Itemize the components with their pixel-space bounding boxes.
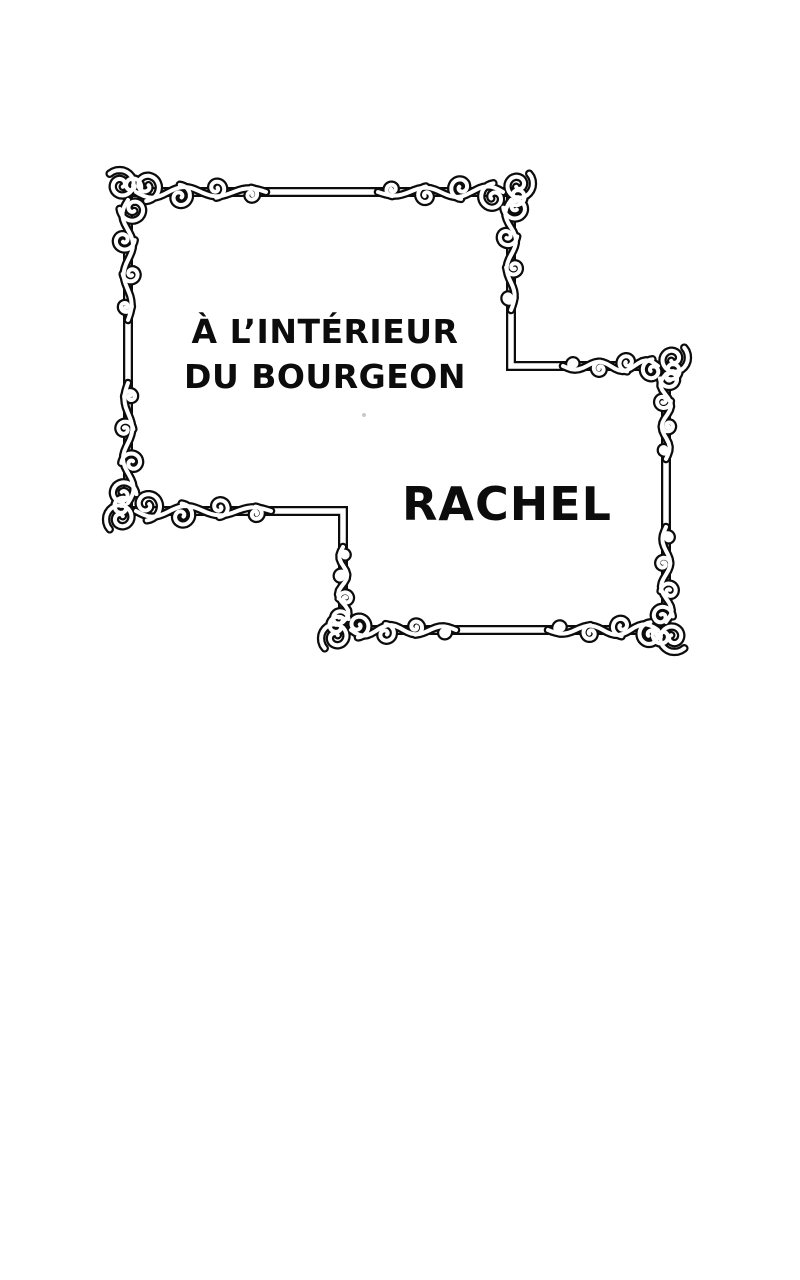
character-name-title: RACHEL <box>377 478 637 530</box>
ornamental-panel-border-icon <box>0 0 800 1280</box>
chapter-title-line2: DU BOURGEON <box>160 354 490 399</box>
chapter-title-line1: À L’INTÉRIEUR <box>160 309 490 354</box>
chapter-title: À L’INTÉRIEUR DU BOURGEON <box>160 309 490 399</box>
scan-speck <box>362 413 366 417</box>
comic-page: À L’INTÉRIEUR DU BOURGEON RACHEL <box>0 0 800 1280</box>
